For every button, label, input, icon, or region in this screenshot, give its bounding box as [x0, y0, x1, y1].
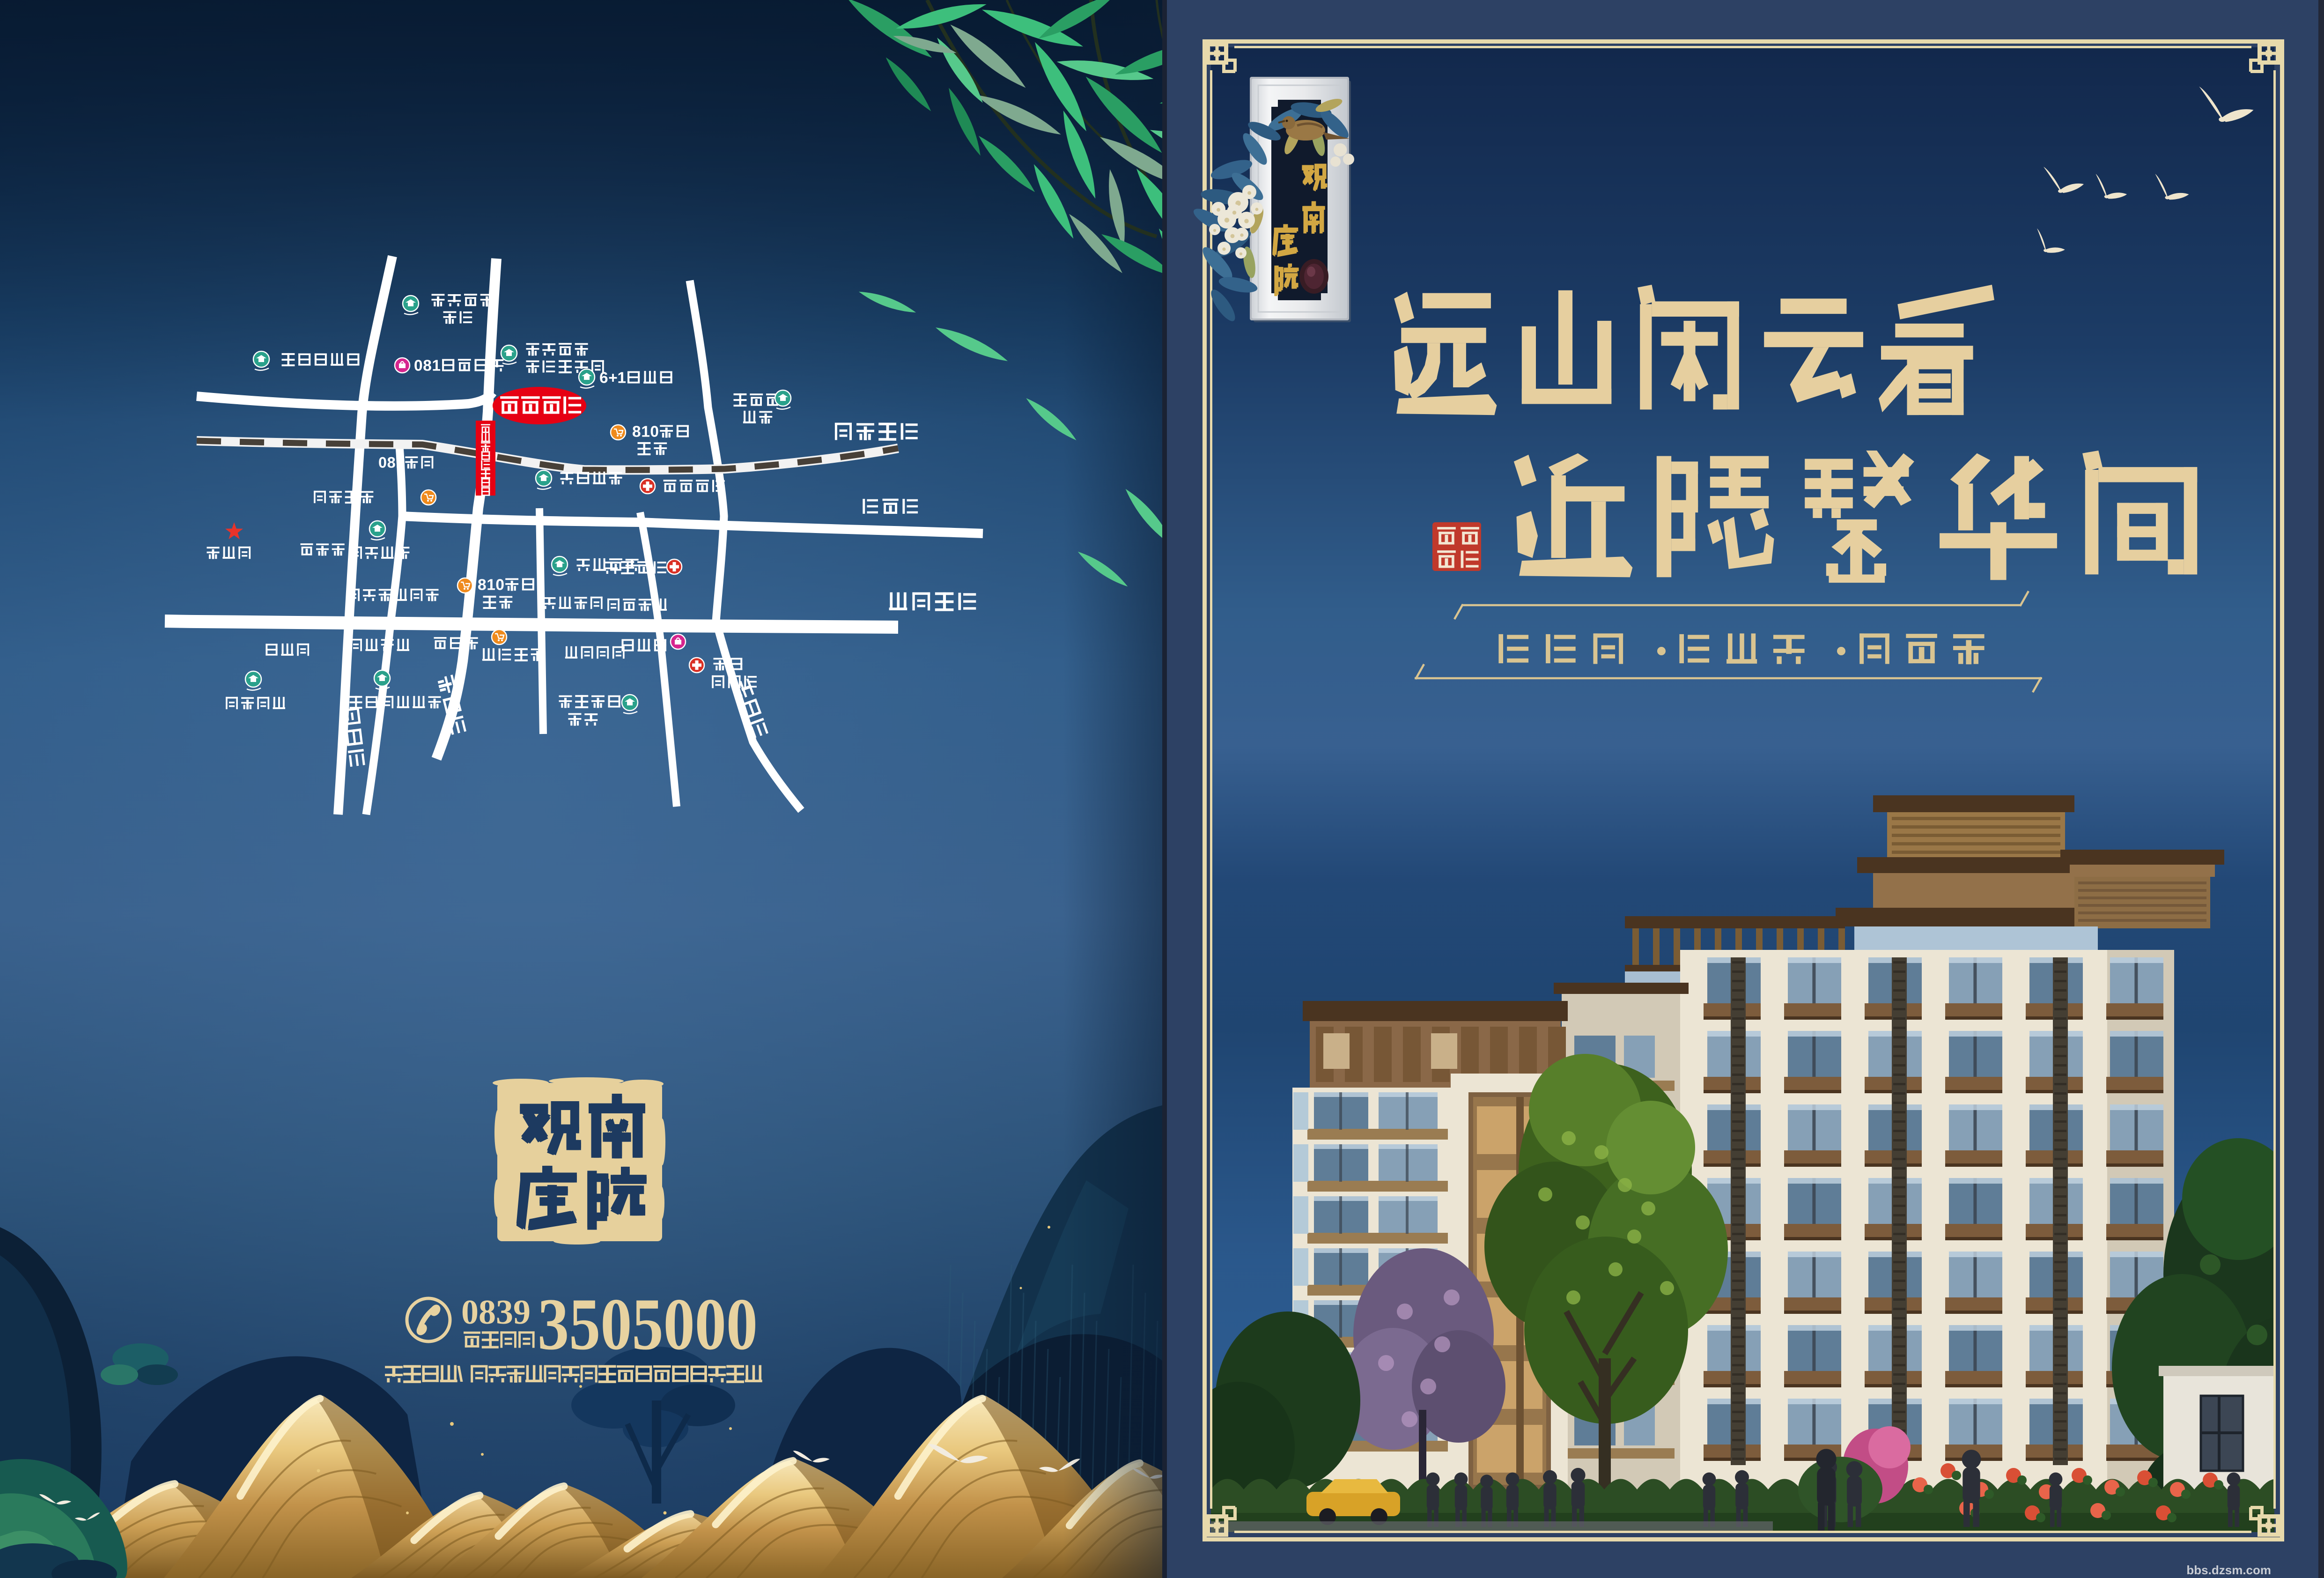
- svg-text:8: 8: [423, 357, 432, 374]
- svg-text:0: 0: [650, 423, 659, 440]
- svg-text:1: 1: [487, 576, 495, 593]
- svg-text:8: 8: [478, 576, 487, 593]
- svg-text:0: 0: [495, 576, 504, 593]
- svg-text:0: 0: [378, 454, 387, 471]
- svg-text:0: 0: [414, 357, 423, 374]
- svg-text:1: 1: [641, 423, 650, 440]
- svg-text:1: 1: [432, 357, 441, 374]
- svg-text:bbs.dzsm.com: bbs.dzsm.com: [2186, 1563, 2271, 1577]
- svg-text:1: 1: [396, 454, 404, 471]
- svg-text:0839: 0839: [461, 1293, 531, 1332]
- svg-text:6: 6: [599, 369, 608, 386]
- svg-text:\: \: [457, 1362, 463, 1386]
- svg-text:8: 8: [632, 423, 641, 440]
- svg-text:8: 8: [387, 454, 396, 471]
- svg-text:+: +: [608, 369, 618, 386]
- svg-text:3505000: 3505000: [538, 1283, 758, 1365]
- svg-text:1: 1: [617, 369, 626, 386]
